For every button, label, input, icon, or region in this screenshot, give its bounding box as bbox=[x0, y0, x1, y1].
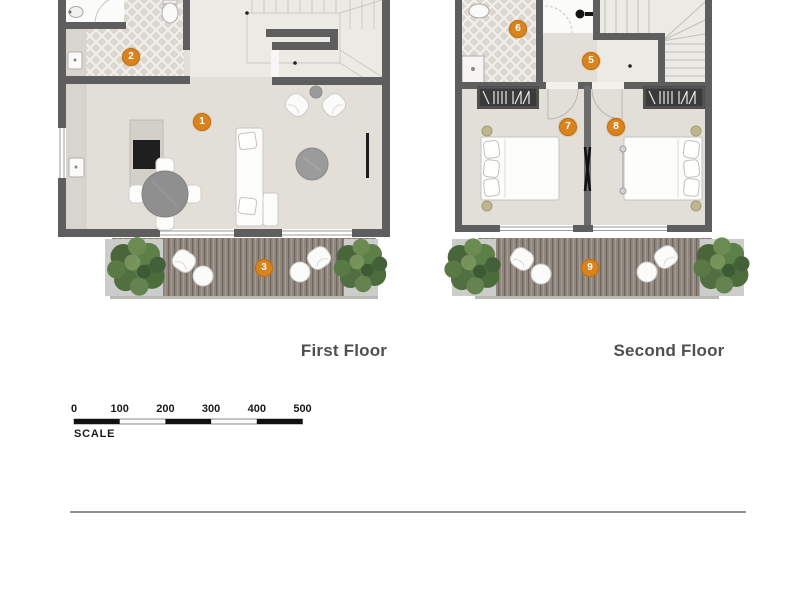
second-floor-label: Second Floor bbox=[613, 341, 724, 361]
bed bbox=[624, 137, 702, 200]
scale-tick-400: 400 bbox=[248, 403, 266, 415]
stair-floor bbox=[597, 0, 712, 84]
bathtub bbox=[462, 56, 484, 83]
balcony-pouf bbox=[637, 262, 657, 282]
bathroom-sink bbox=[69, 7, 84, 18]
room-marker-1: 1 bbox=[193, 113, 211, 131]
light-fixture-dot bbox=[293, 61, 297, 65]
scale-caption: SCALE bbox=[74, 428, 115, 440]
scale-tick-300: 300 bbox=[202, 403, 220, 415]
glass-door-leaf bbox=[366, 133, 369, 178]
scale-bar-graphic bbox=[74, 419, 303, 424]
scale-tick-500: 500 bbox=[293, 403, 311, 415]
scale-tick-100: 100 bbox=[111, 403, 129, 415]
room-marker-6: 6 bbox=[509, 20, 527, 38]
second-floor-plan bbox=[444, 0, 749, 299]
floor-plan-sheet: 1 2 3 5 6 7 8 9 First Floor Second Floor… bbox=[0, 0, 800, 600]
first-floor-balcony bbox=[105, 237, 387, 299]
light-fixture-dot bbox=[245, 11, 249, 15]
shower-room-floor bbox=[543, 0, 593, 33]
balcony-pouf bbox=[193, 266, 213, 286]
room-marker-8: 8 bbox=[607, 118, 625, 136]
wardrobe bbox=[643, 86, 705, 109]
first-floor-plan bbox=[58, 0, 390, 299]
toilet bbox=[162, 0, 178, 23]
first-floor-label: First Floor bbox=[301, 341, 387, 361]
room-marker-3: 3 bbox=[255, 259, 273, 277]
scale-tick-0: 0 bbox=[71, 403, 77, 415]
sink bbox=[469, 4, 489, 18]
room-marker-7: 7 bbox=[559, 118, 577, 136]
balcony-pouf bbox=[531, 264, 551, 284]
room-marker-2: 2 bbox=[122, 48, 140, 66]
bed bbox=[481, 137, 559, 200]
room-marker-9: 9 bbox=[581, 259, 599, 277]
coffee-table bbox=[296, 148, 328, 180]
footer-divider-line bbox=[70, 511, 746, 513]
scale-tick-200: 200 bbox=[156, 403, 174, 415]
balcony-pouf bbox=[290, 262, 310, 282]
plan-graphics bbox=[0, 0, 800, 600]
room-marker-5: 5 bbox=[582, 52, 600, 70]
light-fixture-dot bbox=[628, 64, 632, 68]
wardrobe bbox=[477, 86, 539, 109]
